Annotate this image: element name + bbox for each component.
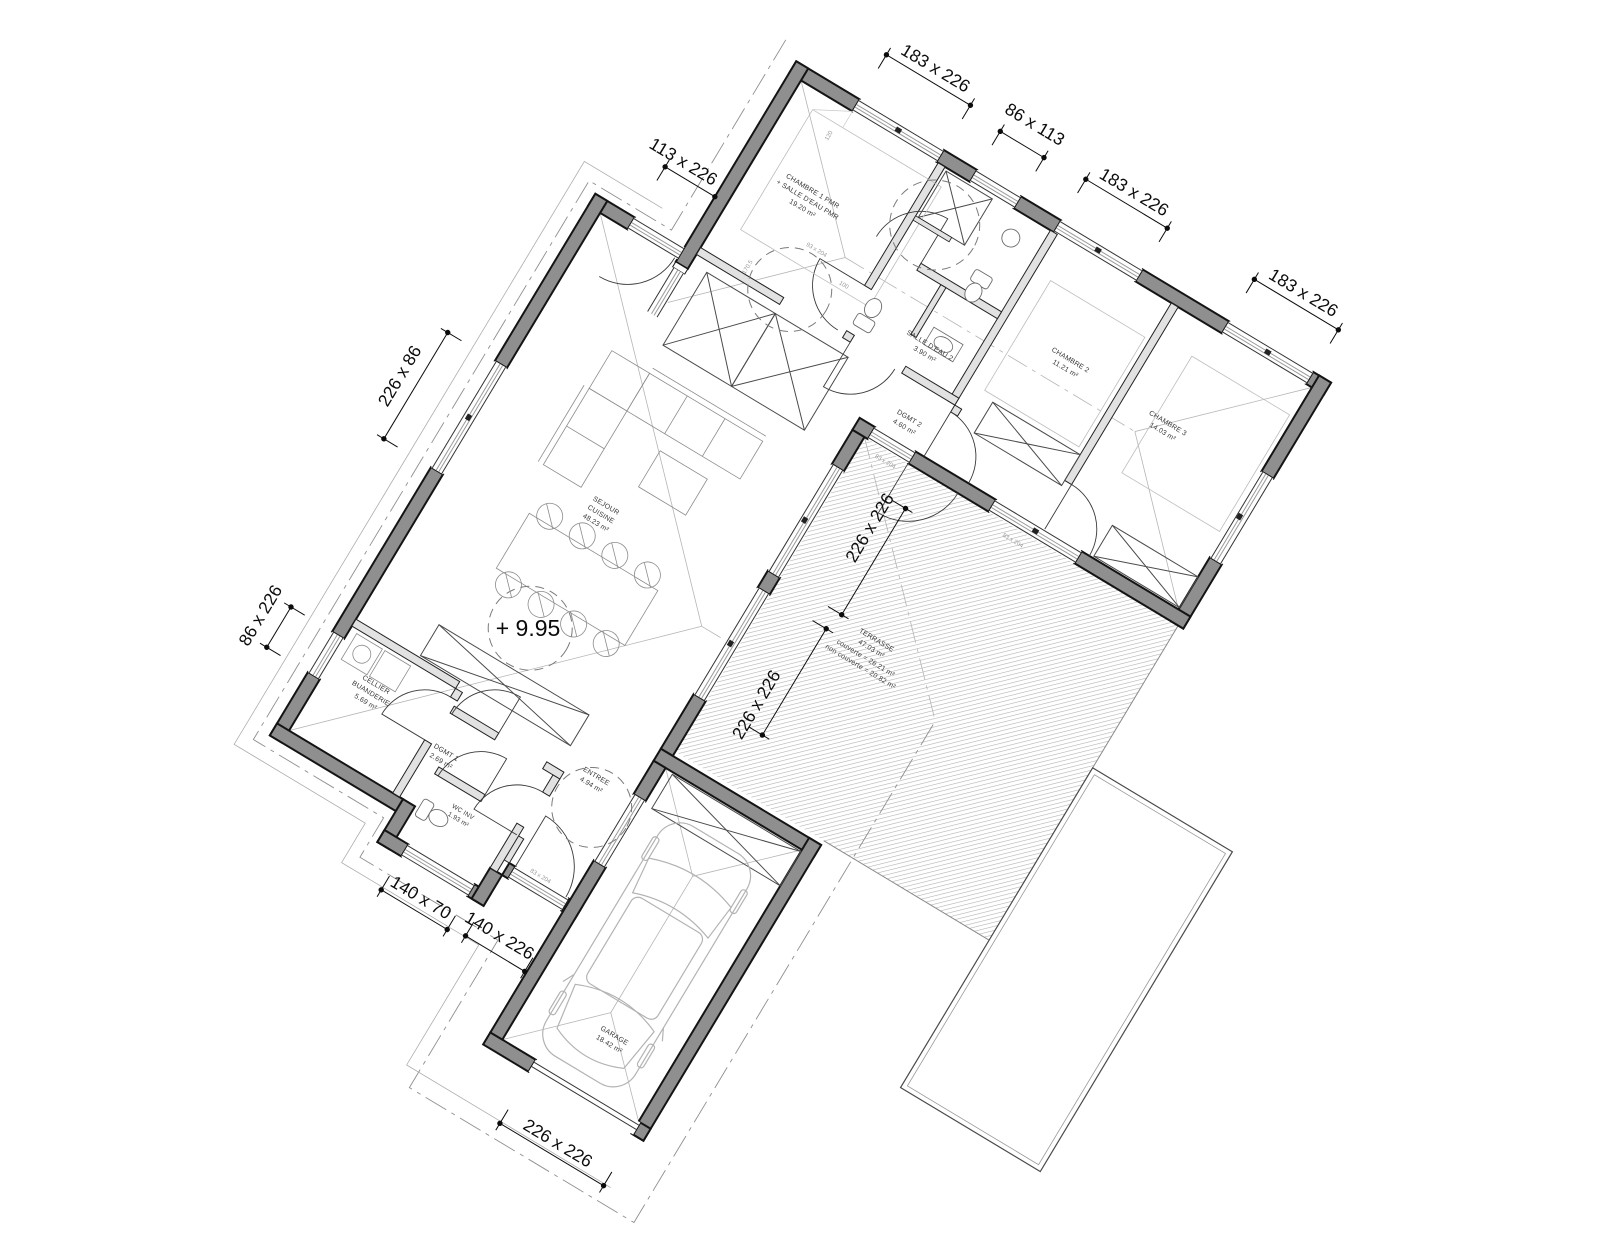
svg-text:+ 9.95: + 9.95 <box>496 615 561 641</box>
